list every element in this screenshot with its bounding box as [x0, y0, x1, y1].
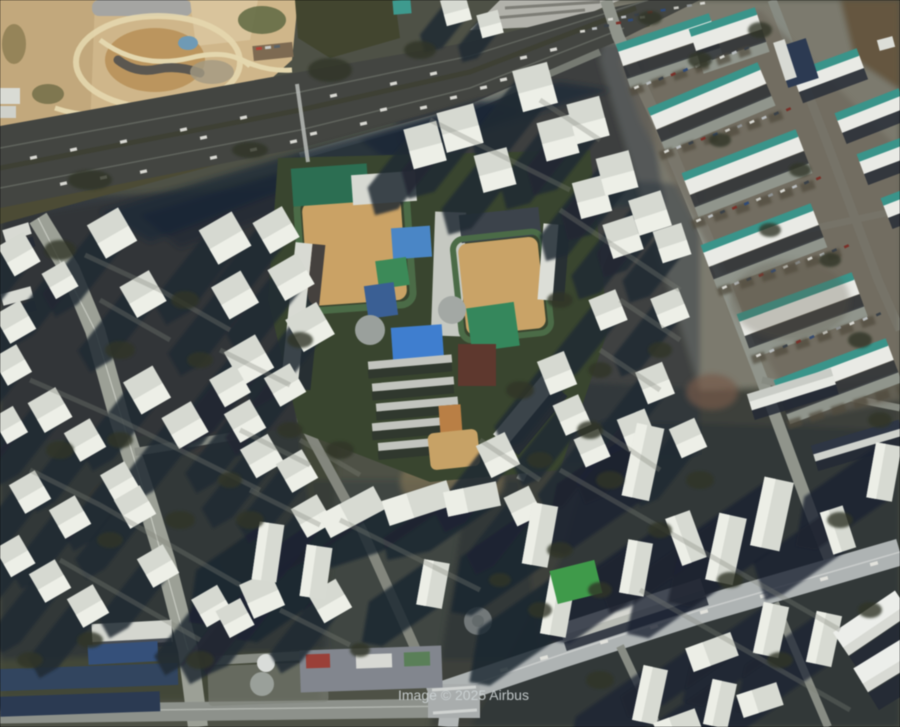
svg-text:Image © 2025 Airbus: Image © 2025 Airbus [398, 687, 529, 703]
